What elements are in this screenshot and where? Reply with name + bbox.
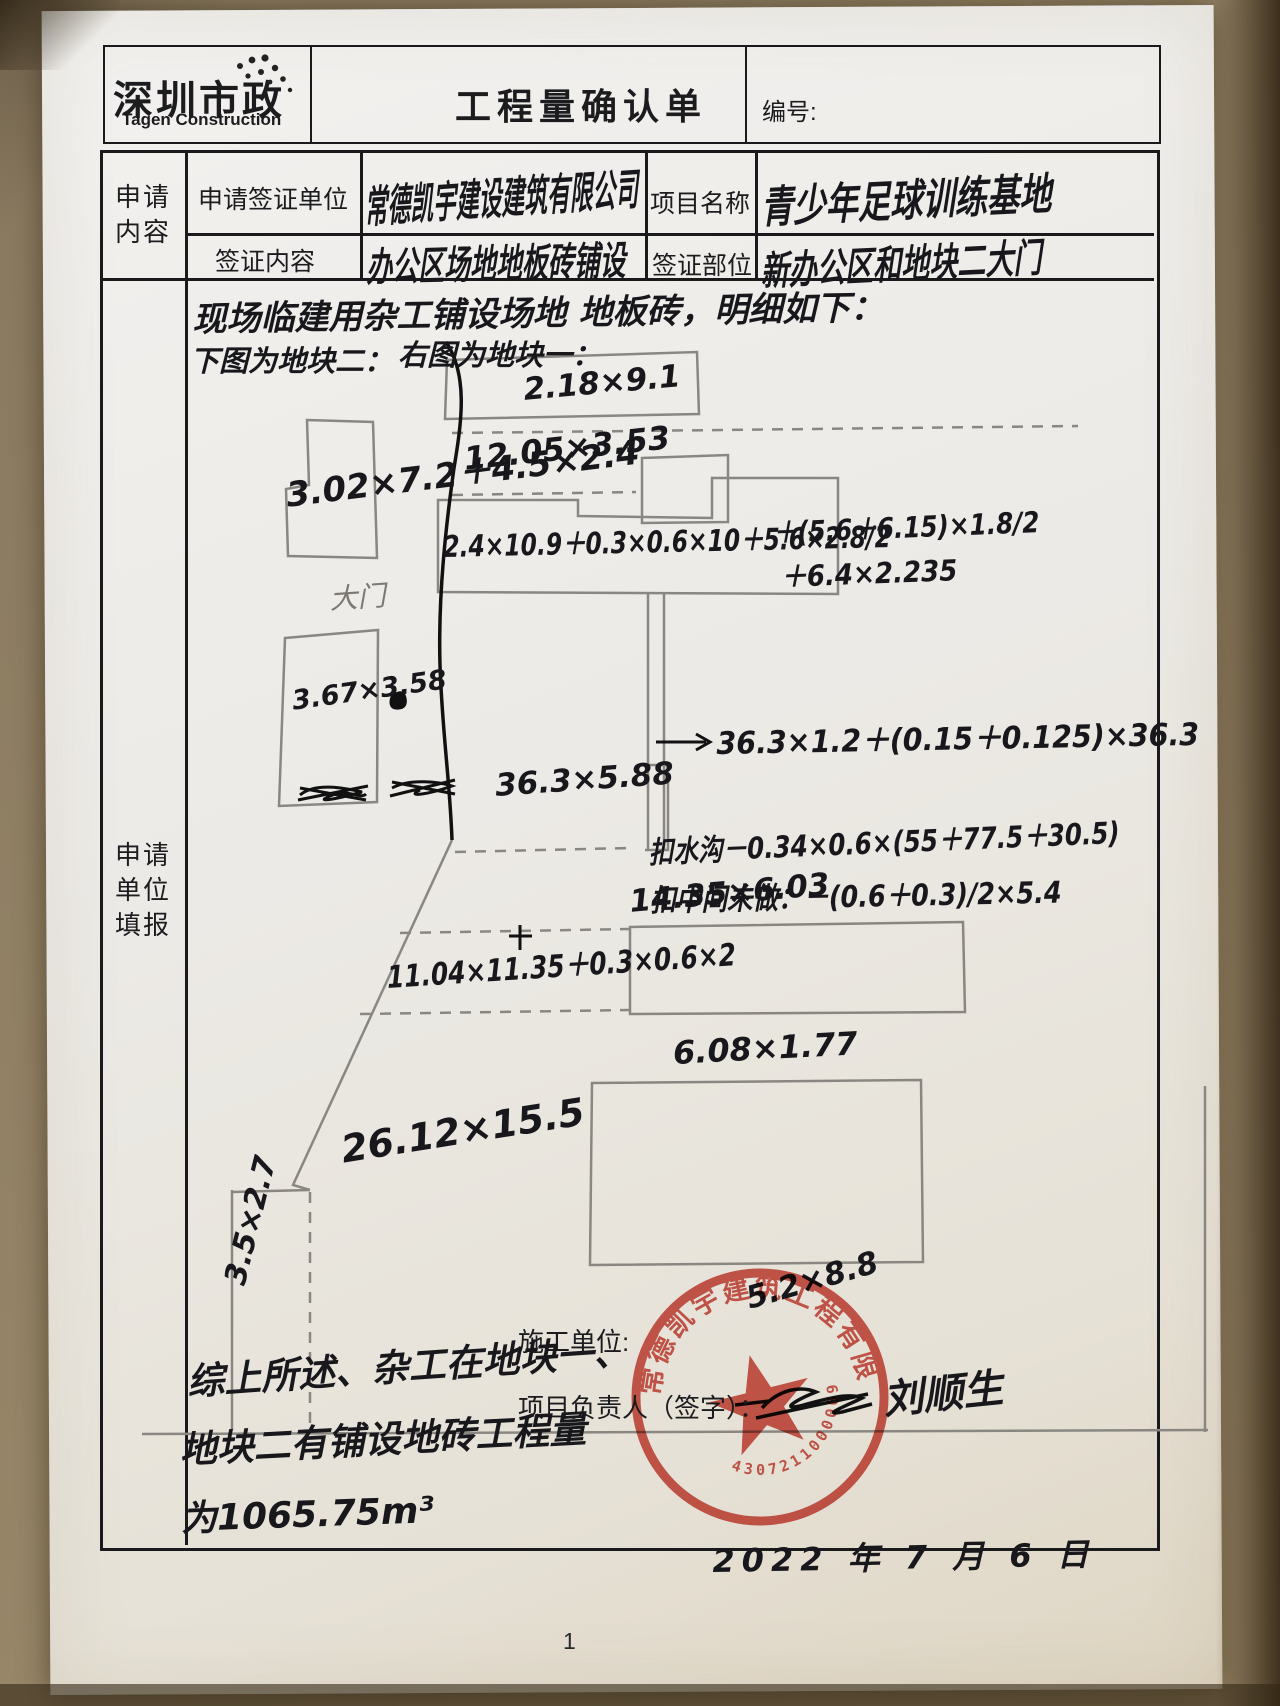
page-number: 1 xyxy=(563,1628,576,1655)
diagram-legend-left: 下图为地块二： xyxy=(190,338,393,380)
photo-of-form: { "header": { "logo_cn": "深圳市政", "logo_e… xyxy=(0,0,1280,1706)
photo-edge-right xyxy=(1216,0,1280,1706)
photo-edge-bottom xyxy=(0,1684,1280,1706)
measure-a-strip: 36.3×1.2＋(0.15＋0.125)×36.3 xyxy=(716,709,1199,763)
date-line: 2022 年 7 月 6 日 xyxy=(712,1529,1096,1582)
gate-label: 大门 xyxy=(328,574,387,618)
summary-line3: 为1065.75m³ xyxy=(180,1481,435,1542)
photo-edge-topleft xyxy=(0,0,120,70)
measure-a-formula1c: ＋6.4×2.235 xyxy=(780,547,958,596)
